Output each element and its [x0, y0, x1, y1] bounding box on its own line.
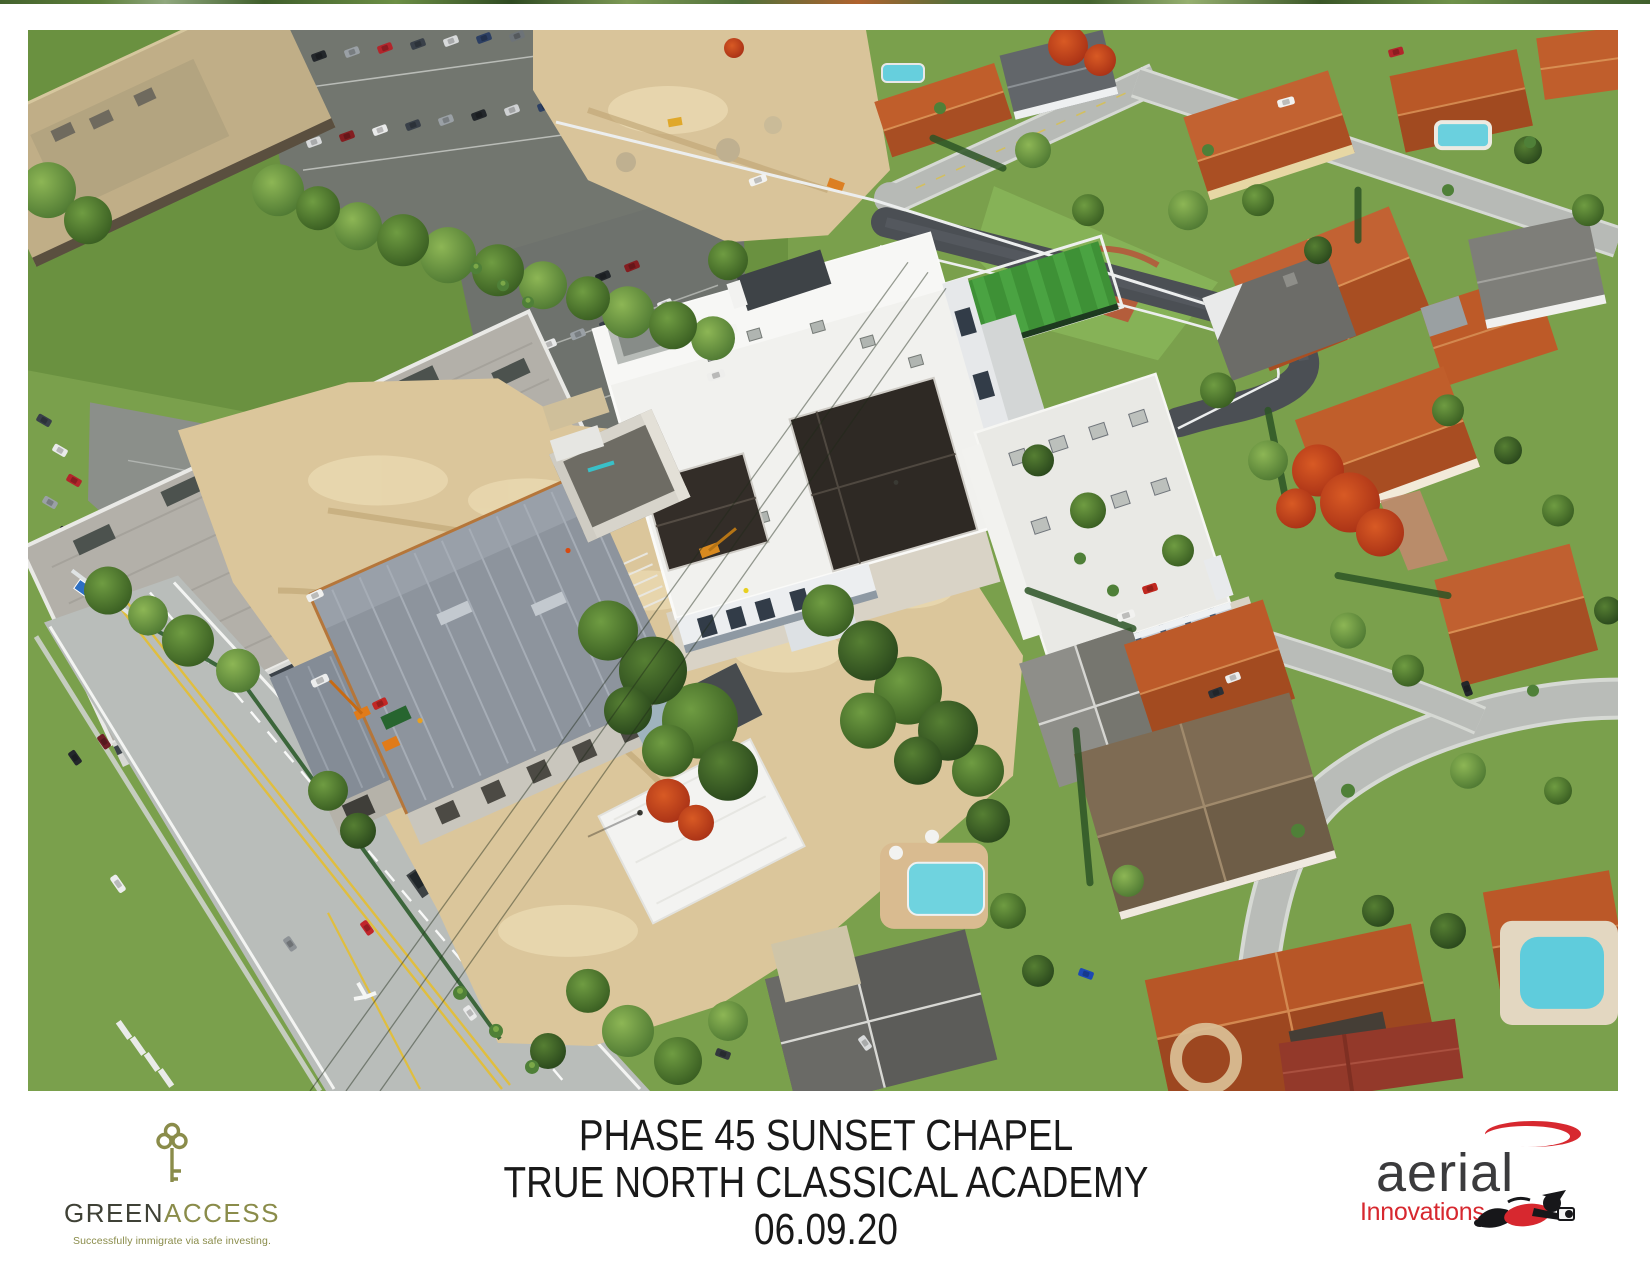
photo-edge-bleed [0, 0, 1650, 4]
greenaccess-tagline: Successfully immigrate via safe investin… [62, 1235, 282, 1247]
pool-area [1500, 921, 1618, 1025]
house [1536, 30, 1618, 100]
pool [1436, 122, 1490, 148]
greenaccess-wordmark: GREENACCESS [62, 1198, 282, 1229]
key-icon [156, 1122, 188, 1186]
caption-line-1: PHASE 45 SUNSET CHAPEL [490, 1112, 1162, 1159]
caption-line-2: TRUE NORTH CLASSICAL ACADEMY [490, 1159, 1162, 1206]
flying-photographer-icon [1472, 1188, 1582, 1240]
caption-line-3: 06.09.20 [490, 1206, 1162, 1253]
innovations-wordmark: Innovations [1360, 1198, 1485, 1227]
pool [882, 64, 924, 82]
progress-photo-page: GREENACCESS Successfully immigrate via s… [0, 0, 1650, 1275]
greenaccess-logo: GREENACCESS Successfully immigrate via s… [62, 1122, 282, 1247]
aerial-innovations-logo: aerial Innovations [1350, 1112, 1590, 1247]
pool-area [880, 830, 988, 929]
aerial-photo [28, 30, 1618, 1091]
aerial-photo-scene [28, 30, 1618, 1091]
photo-caption: PHASE 45 SUNSET CHAPEL TRUE NORTH CLASSI… [490, 1112, 1162, 1253]
